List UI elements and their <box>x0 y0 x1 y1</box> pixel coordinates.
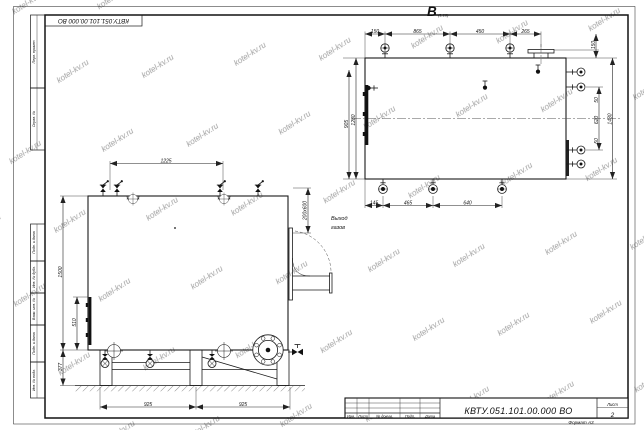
hinge <box>363 132 366 136</box>
gas-outlet-label: Выход <box>331 216 348 222</box>
dim-label-duct: 200x600 <box>303 201 309 221</box>
frame-left-label: Инв. № подл. <box>32 369 36 391</box>
hinge <box>86 303 89 307</box>
dim-label-support: 377 <box>58 363 64 372</box>
dim-label-base: 925 <box>239 402 248 408</box>
dim-label: 905 <box>344 120 350 129</box>
top-designation-text: КВТУ.051.101.00.000 ВО <box>58 17 129 24</box>
sheet-label: Лист <box>606 402 618 407</box>
frame-left-label: Справ. № <box>32 111 36 127</box>
dim-label: 50 <box>594 138 600 144</box>
gas-outlet-label: газов <box>331 225 345 231</box>
frame-left-label: Инв. № дубл. <box>32 266 36 288</box>
dim-label: 150 <box>591 41 597 50</box>
dim-label: 640 <box>463 201 472 207</box>
hinge <box>363 112 366 116</box>
side-hatch-front <box>89 297 92 345</box>
side-hatch-top <box>366 85 369 145</box>
title-col-doc: № докум. <box>376 414 393 418</box>
hinge <box>86 333 89 337</box>
title-col-list: Лист <box>357 414 368 418</box>
dim-label-base: 925 <box>144 402 153 408</box>
dim-label: 450 <box>476 29 485 35</box>
engineering-drawing: kotel-kv.ru kotel-kv.ru Перв. примен. Сп… <box>0 0 644 430</box>
rear-plate <box>567 140 570 176</box>
frame-left-label: Взам. инв. № <box>32 298 36 320</box>
frame-left-label: Подп. и дата <box>32 332 36 355</box>
dim-label: 620 <box>594 116 600 125</box>
dim-label: 465 <box>404 201 413 207</box>
center-dot <box>174 227 176 229</box>
watermark-layer <box>0 0 644 430</box>
dim-label: 265 <box>520 29 530 35</box>
hinge <box>363 92 366 96</box>
title-col-sign: Подп. <box>405 414 415 418</box>
hinge <box>86 318 89 322</box>
ground-hatching <box>75 386 305 392</box>
dim-label: 1430 <box>608 113 614 124</box>
view-label: В <box>427 4 437 19</box>
dim-label: 150 <box>371 29 380 35</box>
view-scale-note: (1:10) <box>438 13 449 18</box>
dim-label-hatch: 510 <box>72 318 78 327</box>
format-label: Формат А3 <box>568 420 594 425</box>
drawing-sheet: kotel-kv.ru kotel-kv.ru Перв. примен. Сп… <box>0 0 644 430</box>
frame-left-label: Подп. и дата <box>32 231 36 254</box>
designation-text: КВТУ.051.101.00.000 ВО <box>464 406 572 416</box>
dim-label-span: 1225 <box>160 158 171 164</box>
title-col-date: Дата <box>424 414 435 418</box>
title-col-izm: Изм. <box>347 414 355 418</box>
dim-label: 145 <box>370 201 379 207</box>
sheet-number: 2 <box>610 412 615 419</box>
dim-label: 50 <box>594 97 600 103</box>
dim-label: 1280 <box>351 114 357 125</box>
burner-flange <box>253 335 283 365</box>
dim-label-height: 1500 <box>58 266 64 277</box>
frame-left-label: Перв. примен. <box>32 40 36 64</box>
dim-label: 865 <box>413 29 422 35</box>
